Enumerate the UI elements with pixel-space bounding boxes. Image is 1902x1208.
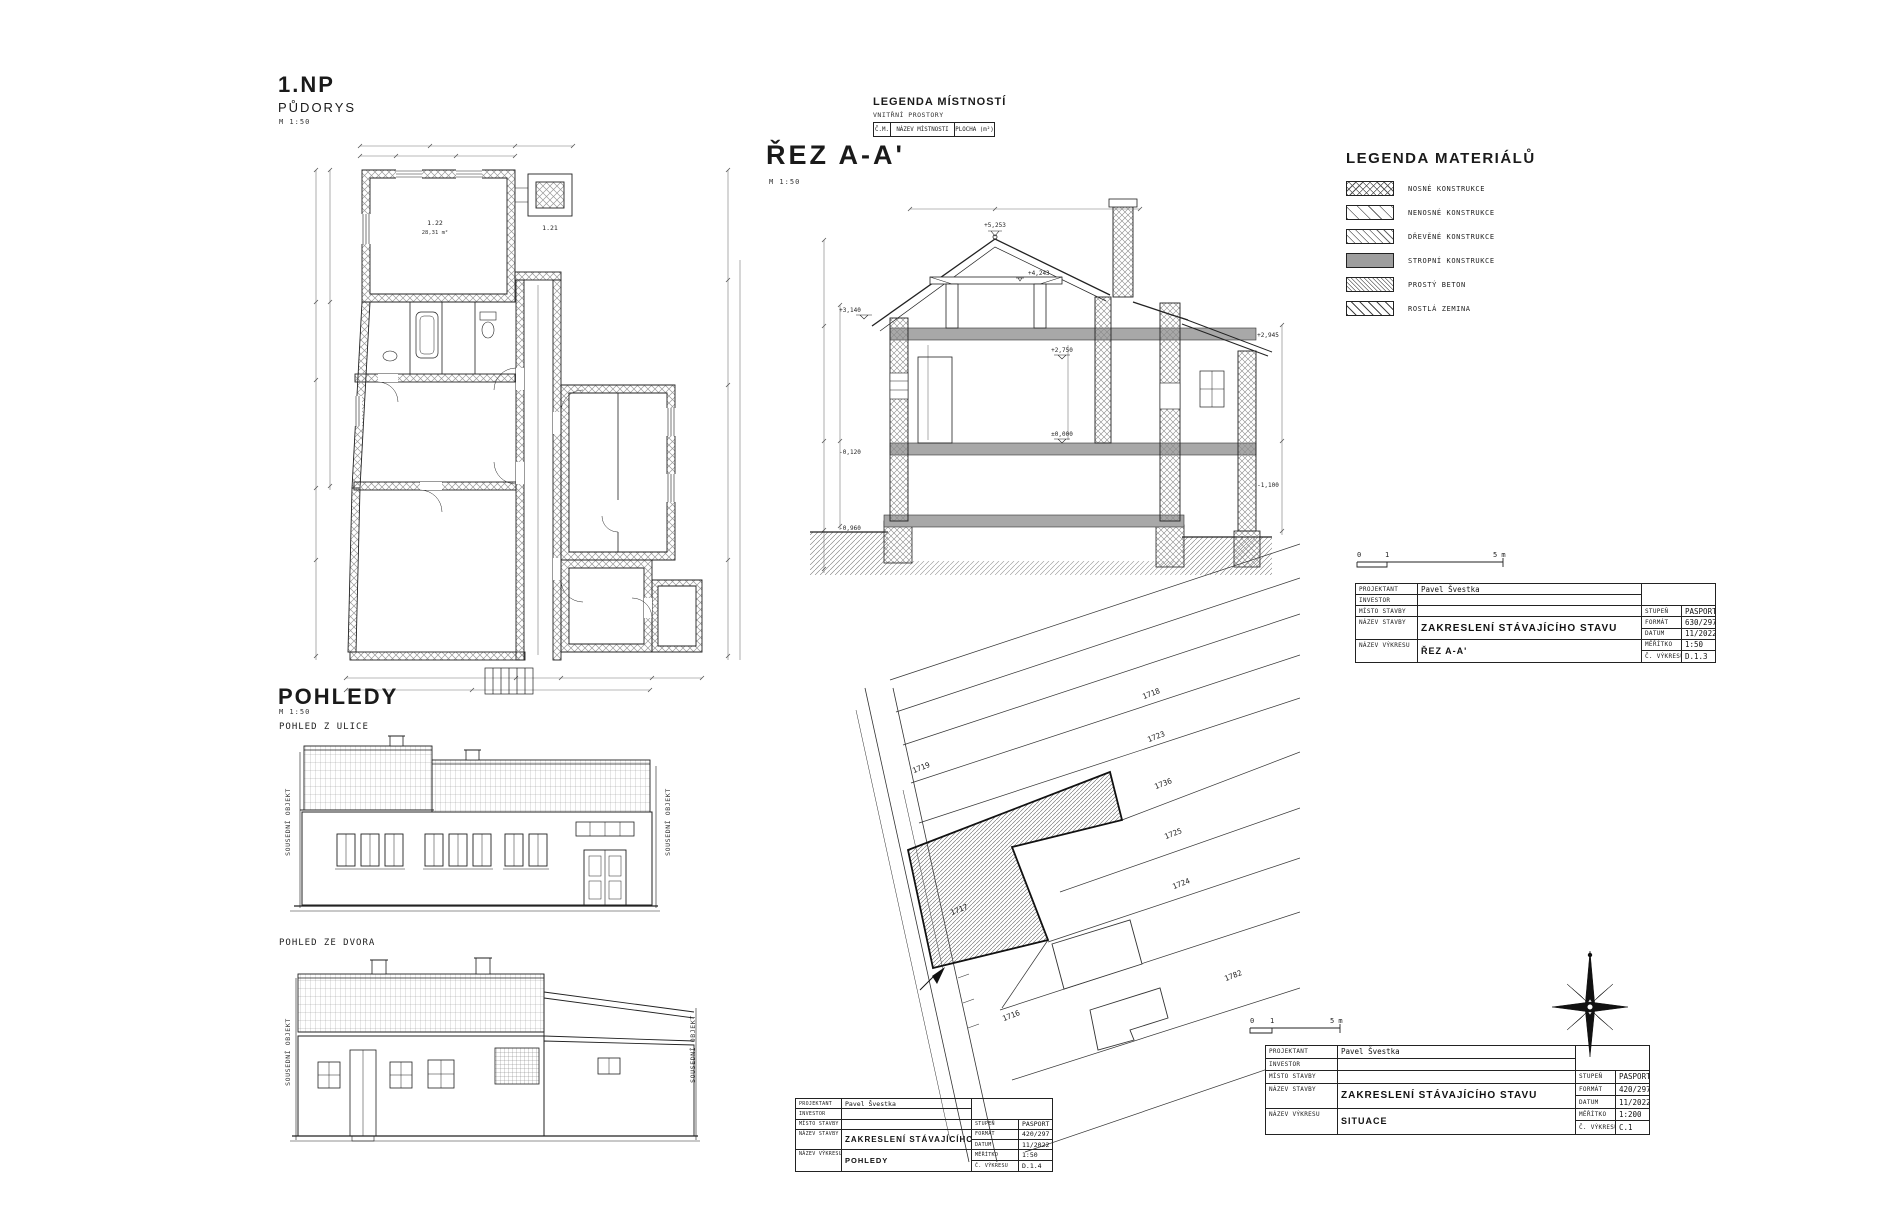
tb-label-nazev-stavby: NÁZEV STAVBY (1356, 617, 1418, 639)
tb-value-nazev-vykresu: POHLEDY (842, 1150, 972, 1171)
svg-text:1725: 1725 (1163, 826, 1183, 841)
room-legend-table: Č.M. NÁZEV MÍSTNOSTI PLOCHA (m²) (873, 122, 995, 137)
svg-text:1718: 1718 (1141, 686, 1162, 701)
tb-value-cislo: D.1.4 (1019, 1161, 1052, 1171)
room-legend-col-number: Č.M. (874, 123, 891, 136)
north-compass-icon (1545, 945, 1635, 1060)
legend-item: NOSNÉ KONSTRUKCE (1346, 181, 1576, 196)
hatch-wide-swatch (1346, 301, 1394, 316)
tb-label-investor: INVESTOR (1266, 1059, 1338, 1072)
tb-value-datum: 11/2022 (1616, 1096, 1649, 1109)
tb-label-meritko: MĚŘÍTKO (1576, 1109, 1616, 1122)
titleblock-section: PROJEKTANT Pavel Švestka INVESTOR MÍSTO … (1355, 583, 1716, 663)
svg-text:1736: 1736 (1153, 776, 1174, 791)
svg-text:+2,750: +2,750 (1051, 347, 1073, 354)
room-legend: LEGENDA MÍSTNOSTÍ VNITŘNÍ PROSTORY Č.M. … (873, 96, 1006, 137)
room-legend-title: LEGENDA MÍSTNOSTÍ (873, 96, 1006, 108)
tb-label-nazev-vykresu: NÁZEV VÝKRESU (1266, 1109, 1338, 1134)
tb-label-datum: DATUM (1576, 1096, 1616, 1109)
tb-value-meritko: 1:200 (1616, 1109, 1649, 1122)
tb-value-projektant: Pavel Švestka (1338, 1046, 1576, 1059)
section-slabs (884, 328, 1256, 527)
room-tag-main: 1.22 (427, 219, 443, 227)
tb-value-meritko: 1:50 (1019, 1150, 1052, 1160)
site-plan-drawing: 1719 1718 1723 1736 1725 1724 1717 1782 … (660, 540, 1300, 1170)
tb-value-nazev-vykresu: ŘEZ A-A' (1418, 640, 1642, 662)
tb-value-nazev-vykresu: SITUACE (1338, 1109, 1576, 1134)
tb-value-projektant: Pavel Švestka (1418, 584, 1642, 595)
tb-value-format: 630/297 (1682, 617, 1715, 628)
tb-label-nazev-vykresu: NÁZEV VÝKRESU (796, 1150, 842, 1171)
section-door (918, 357, 952, 443)
scalebar-one: 1 (1270, 1017, 1274, 1025)
tb-value-datum: 11/2022 (1682, 629, 1715, 640)
floor-plan-scale: M 1:50 (279, 118, 310, 126)
street-entrance-door (584, 850, 626, 905)
scalebar-five: 5 m (1330, 1017, 1343, 1025)
tb-label-misto: MÍSTO STAVBY (1266, 1071, 1338, 1084)
tb-label-cislo: Č. VÝKRESU (1576, 1121, 1616, 1134)
room-tag-shaft: 1.21 (542, 224, 558, 232)
legend-item: DŘEVĚNÉ KONSTRUKCE (1346, 229, 1576, 244)
tb-value-format: 420/297 (1019, 1130, 1052, 1140)
scalebar-five: 5 m (1493, 551, 1506, 559)
tb-label-projektant: PROJEKTANT (1266, 1046, 1338, 1059)
site-scalebar: 0 1 5 m (1248, 1014, 1358, 1038)
tb-label-meritko: MĚŘÍTKO (1642, 640, 1682, 651)
tb-value-format: 420/297 (1616, 1084, 1649, 1097)
room-area-main: 28,31 m² (422, 229, 449, 236)
svg-text:+3,140: +3,140 (839, 307, 861, 314)
section-drawing: +5,253 +4,243 +2,750 ±0,000 +3,140 -0,12… (810, 185, 1300, 585)
yard-elevation-drawing (280, 948, 710, 1158)
svg-text:-1,100: -1,100 (1257, 482, 1279, 489)
section-walls (890, 207, 1256, 531)
tb-value-projektant: Pavel Švestka (842, 1099, 972, 1109)
svg-text:1716: 1716 (1001, 1008, 1022, 1023)
street-windows (335, 834, 549, 869)
tb-value-datum: 11/2022 (1019, 1140, 1052, 1150)
svg-text:+5,253: +5,253 (984, 222, 1006, 229)
section-scalebar: 0 1 5 m (1355, 548, 1515, 572)
tb-value-meritko: 1:50 (1682, 640, 1715, 651)
hatch-cross-swatch (1346, 181, 1394, 196)
drawing-sheet: 1.NP PŮDORYS M 1:50 (0, 0, 1902, 1208)
tb-label-projektant: PROJEKTANT (1356, 584, 1418, 595)
tb-value-nazev-stavby: ZAKRESLENÍ STÁVAJÍCÍHO STAVU (842, 1130, 972, 1151)
plan-left-wall (352, 302, 370, 488)
tb-label-stupen: STUPEŇ (1642, 606, 1682, 617)
tb-label-nazev-stavby: NÁZEV STAVBY (796, 1130, 842, 1151)
tb-value-nazev-stavby: ZAKRESLENÍ STÁVAJÍCÍHO STAVU (1338, 1084, 1576, 1109)
materials-legend: LEGENDA MATERIÁLŮ NOSNÉ KONSTRUKCE NENOS… (1346, 150, 1576, 325)
tb-label-datum: DATUM (1642, 629, 1682, 640)
tb-label-stupen: STUPEŇ (972, 1120, 1019, 1130)
tb-label-format: FORMÁT (972, 1130, 1019, 1140)
tb-label-format: FORMÁT (1576, 1084, 1616, 1097)
elevations-title: POHLEDY (278, 684, 398, 710)
tb-value-cislo: D.1.3 (1682, 651, 1715, 662)
floor-plan-subtitle: PŮDORYS (278, 100, 356, 115)
materials-legend-title: LEGENDA MATERIÁLŮ (1346, 150, 1576, 167)
svg-text:-0,960: -0,960 (839, 525, 861, 532)
titleblock-pohledy: PROJEKTANT Pavel Švestka INVESTOR MÍSTO … (795, 1098, 1053, 1172)
section-title: ŘEZ A-A' (766, 140, 905, 171)
plan-shaft (515, 174, 572, 216)
solid-gray-swatch (1346, 253, 1394, 268)
yard-openings (318, 1048, 620, 1141)
floor-plan-title: 1.NP (278, 72, 335, 98)
tb-label-nazev-vykresu: NÁZEV VÝKRESU (1356, 640, 1418, 662)
tb-empty (972, 1099, 1052, 1120)
site-entrance-arrow (920, 967, 945, 990)
legend-item: PROSTÝ BETON (1346, 277, 1576, 292)
tb-value-cislo: C.1 (1616, 1121, 1649, 1134)
tb-label-projektant: PROJEKTANT (796, 1099, 842, 1109)
tb-label-nazev-stavby: NÁZEV STAVBY (1266, 1084, 1338, 1109)
legend-item: STROPNÍ KONSTRUKCE (1346, 253, 1576, 268)
tb-empty (1642, 584, 1715, 606)
svg-text:1723: 1723 (1146, 729, 1166, 744)
plan-room-top-walls (362, 170, 515, 302)
street-elevation-drawing (280, 730, 680, 930)
svg-text:1719: 1719 (911, 760, 931, 775)
svg-text:±0,000: ±0,000 (1051, 431, 1073, 438)
hatch-sparse-swatch (1346, 205, 1394, 220)
tb-label-stupen: STUPEŇ (1576, 1071, 1616, 1084)
tb-label-format: FORMÁT (1642, 617, 1682, 628)
svg-text:-0,120: -0,120 (839, 449, 861, 456)
tb-value-stupen: PASPORT (1682, 606, 1715, 617)
legend-item: ROSTLÁ ZEMINA (1346, 301, 1576, 316)
scalebar-zero: 0 (1250, 1017, 1254, 1025)
tb-label-cislo: Č. VÝKRESU (1642, 651, 1682, 662)
tb-label-cislo: Č. VÝKRESU (972, 1161, 1019, 1171)
hatch-fine-swatch (1346, 277, 1394, 292)
svg-text:1782: 1782 (1223, 968, 1243, 983)
svg-text:+4,243: +4,243 (1028, 270, 1050, 277)
tb-label-meritko: MĚŘÍTKO (972, 1150, 1019, 1160)
svg-text:1724: 1724 (1171, 876, 1192, 891)
tb-value-nazev-stavby: ZAKRESLENÍ STÁVAJÍCÍHO STAVU (1418, 617, 1642, 639)
tb-value-stupen: PASPORT (1616, 1071, 1649, 1084)
room-legend-col-name: NÁZEV MÍSTNOSTI (891, 123, 955, 136)
room-legend-subtitle: VNITŘNÍ PROSTORY (873, 111, 1006, 119)
tb-label-misto: MÍSTO STAVBY (1356, 606, 1418, 617)
scalebar-one: 1 (1385, 551, 1389, 559)
legend-item: NENOSNÉ KONSTRUKCE (1346, 205, 1576, 220)
room-legend-col-area: PLOCHA (m²) (955, 123, 994, 136)
tb-label-misto: MÍSTO STAVBY (796, 1120, 842, 1130)
scalebar-zero: 0 (1357, 551, 1361, 559)
hatch-diagonal-swatch (1346, 229, 1394, 244)
tb-label-investor: INVESTOR (1356, 595, 1418, 606)
yard-elevation-label: POHLED ZE DVORA (279, 938, 375, 948)
section-scale: M 1:50 (769, 178, 800, 186)
elevations-scale: M 1:50 (279, 708, 310, 716)
tb-value-stupen: PASPORT (1019, 1120, 1052, 1130)
tb-label-investor: INVESTOR (796, 1109, 842, 1119)
svg-text:+2,945: +2,945 (1257, 332, 1279, 339)
tb-label-datum: DATUM (972, 1140, 1019, 1150)
